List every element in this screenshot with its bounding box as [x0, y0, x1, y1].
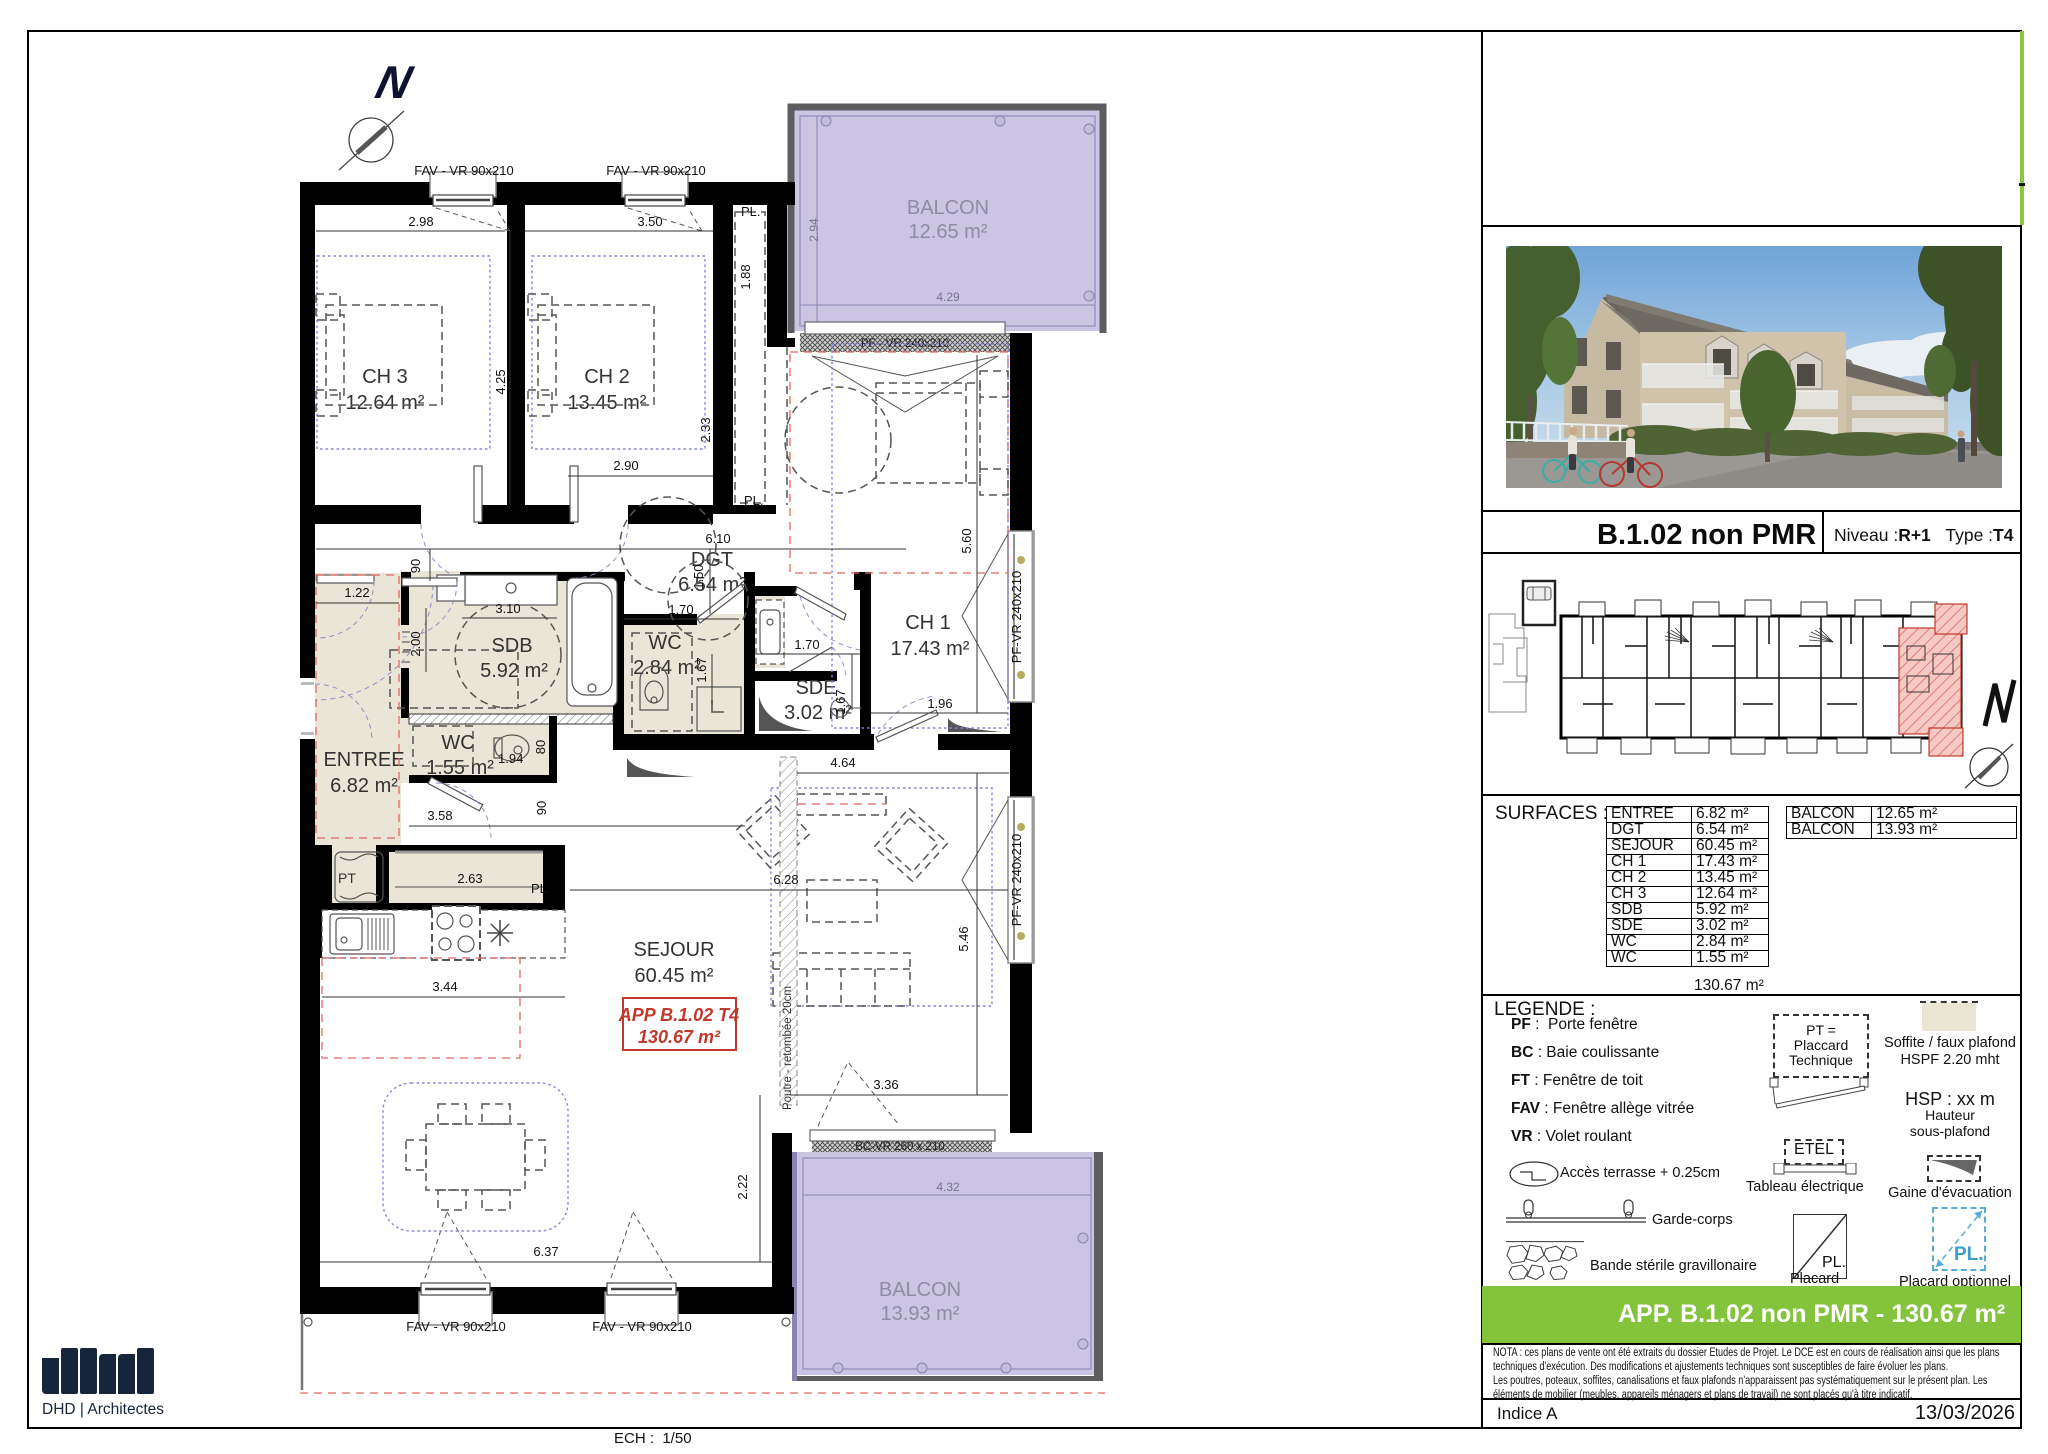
svg-text:3.58: 3.58: [427, 808, 452, 823]
svg-text:13.45 m²: 13.45 m²: [568, 392, 647, 414]
svg-text:FAV - VR 90x210: FAV - VR 90x210: [406, 1319, 505, 1334]
svg-text:6.37: 6.37: [533, 1244, 558, 1259]
svg-text:WC: WC: [648, 632, 681, 654]
svg-text:3.10: 3.10: [495, 601, 520, 616]
svg-text:SEJOUR: SEJOUR: [633, 939, 714, 961]
svg-text:1.55 m²: 1.55 m²: [426, 757, 494, 779]
svg-text:CH 3: CH 3: [362, 366, 408, 388]
svg-text:FAV - VR 90x210: FAV - VR 90x210: [606, 163, 705, 178]
svg-text:ENTREE: ENTREE: [323, 749, 404, 771]
svg-text:3.36: 3.36: [873, 1077, 898, 1092]
svg-text:2.22: 2.22: [735, 1174, 750, 1199]
svg-text:2.33: 2.33: [698, 417, 713, 442]
svg-text:PF-VR 240x210: PF-VR 240x210: [1009, 571, 1024, 664]
svg-text:CH 2: CH 2: [584, 366, 630, 388]
svg-text:WC: WC: [441, 732, 474, 754]
svg-text:17.43 m²: 17.43 m²: [891, 638, 970, 660]
svg-text:Poutre - retombée 20cm: Poutre - retombée 20cm: [782, 986, 794, 1110]
svg-text:FAV - VR 90x210: FAV - VR 90x210: [414, 163, 513, 178]
svg-text:APP B.1.02 T4: APP B.1.02 T4: [618, 1005, 739, 1025]
svg-text:60.45 m²: 60.45 m²: [635, 965, 714, 987]
svg-text:1.70: 1.70: [668, 602, 693, 617]
svg-text:5.46: 5.46: [956, 926, 971, 951]
svg-text:1.67: 1.67: [694, 657, 709, 682]
svg-text:5.92 m²: 5.92 m²: [480, 660, 548, 682]
svg-text:PT: PT: [338, 870, 356, 886]
svg-text:3.50: 3.50: [637, 214, 662, 229]
svg-text:SDB: SDB: [491, 635, 532, 657]
svg-text:3.44: 3.44: [432, 979, 457, 994]
svg-text:PL.: PL.: [741, 204, 761, 219]
svg-text:5.60: 5.60: [959, 528, 974, 553]
svg-text:12.64 m²: 12.64 m²: [346, 392, 425, 414]
svg-text:1.88: 1.88: [738, 264, 753, 289]
svg-text:130.67 m²: 130.67 m²: [638, 1027, 721, 1047]
svg-text:CH 1: CH 1: [905, 612, 951, 634]
svg-text:2.98: 2.98: [408, 214, 433, 229]
svg-text:6.82 m²: 6.82 m²: [330, 775, 398, 797]
svg-text:PF-VR 240x210: PF-VR 240x210: [1009, 834, 1024, 927]
svg-text:SDE: SDE: [795, 677, 836, 699]
svg-text:2.00: 2.00: [408, 631, 423, 656]
svg-text:1.94: 1.94: [498, 751, 523, 766]
svg-text:1.96: 1.96: [927, 696, 952, 711]
svg-text:4.25: 4.25: [493, 369, 508, 394]
svg-text:2.90: 2.90: [613, 458, 638, 473]
svg-text:DHD | Architectes: DHD | Architectes: [42, 1401, 164, 1418]
svg-text:1.50: 1.50: [691, 564, 706, 589]
svg-text:FAV - VR 90x210: FAV - VR 90x210: [592, 1319, 691, 1334]
svg-text:4.64: 4.64: [830, 755, 855, 770]
svg-text:1.70: 1.70: [794, 637, 819, 652]
svg-text:80: 80: [533, 740, 548, 754]
svg-text:PL.: PL.: [744, 493, 764, 508]
svg-text:90: 90: [534, 801, 549, 815]
svg-text:PL.: PL.: [531, 881, 551, 896]
svg-text:6.10: 6.10: [705, 531, 730, 546]
svg-text:2.63: 2.63: [457, 871, 482, 886]
svg-text:1.67: 1.67: [833, 689, 848, 714]
svg-text:90: 90: [408, 559, 423, 573]
svg-text:1.22: 1.22: [344, 585, 369, 600]
svg-text:6.28: 6.28: [773, 872, 798, 887]
